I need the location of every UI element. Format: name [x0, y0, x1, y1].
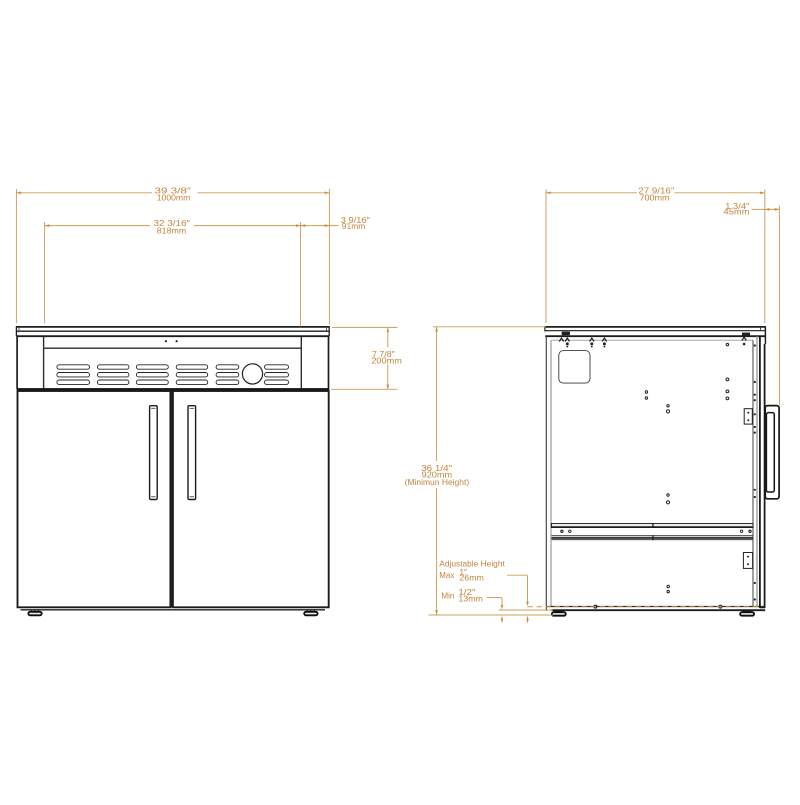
svg-text:(Minimun Height): (Minimun Height) [405, 477, 470, 487]
svg-text:700mm: 700mm [640, 193, 670, 203]
svg-text:1000mm: 1000mm [157, 193, 191, 203]
svg-text:13mm: 13mm [458, 594, 483, 604]
svg-text:Max: Max [439, 570, 455, 580]
svg-text:26mm: 26mm [459, 572, 484, 582]
svg-text:Adjustable Height: Adjustable Height [439, 558, 505, 568]
svg-text:45mm: 45mm [724, 207, 750, 217]
svg-text:200mm: 200mm [371, 356, 402, 366]
svg-text:91mm: 91mm [342, 221, 366, 231]
svg-text:818mm: 818mm [157, 225, 187, 235]
svg-text:Min: Min [441, 590, 454, 600]
